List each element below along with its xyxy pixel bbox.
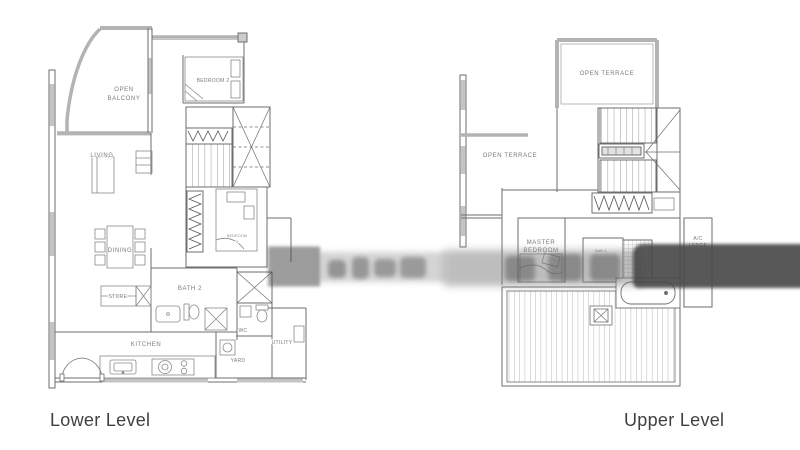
label-master-bedroom: MASTER — [527, 240, 556, 246]
label-bedroom3-2: 3 — [236, 240, 238, 244]
label-bath1: Bath 1 — [595, 249, 607, 253]
shaft-icon — [237, 272, 272, 303]
upper-room-labels: OPEN TERRACE OPEN TERRACE MASTER BEDROOM… — [483, 71, 708, 254]
wc-fixtures — [240, 305, 268, 322]
shower-icon — [205, 308, 227, 330]
label-wc: WC — [239, 328, 248, 334]
floorplan-image: OPEN BALCONY BEDROOM 2 LIVING DINING STO… — [0, 0, 800, 450]
wc-sink-icon — [240, 306, 251, 317]
label-open-terrace-top: OPEN TERRACE — [580, 71, 634, 77]
bedroom3 — [186, 187, 267, 267]
lower-level-plan: OPEN BALCONY BEDROOM 2 LIVING DINING STO… — [49, 28, 306, 388]
label-kitchen: KITCHEN — [131, 342, 162, 348]
window-strip — [102, 379, 208, 383]
upper-wardrobe-icon — [592, 193, 674, 213]
label-utility: UTILITY — [272, 340, 293, 346]
label-store: STORE — [109, 294, 128, 300]
washing-machine-icon — [220, 340, 235, 355]
upper-bath — [583, 238, 652, 282]
label-bedroom2: BEDROOM 2 — [197, 78, 230, 84]
label-bedroom3: BEDROOM — [227, 234, 247, 238]
label-living: LIVING — [90, 153, 113, 159]
caption-upper-level: Upper Level — [624, 410, 724, 431]
upper-left-wall — [460, 75, 466, 247]
floor-plan-drawing: OPEN BALCONY BEDROOM 2 LIVING DINING STO… — [0, 0, 800, 450]
stair-rail — [599, 144, 644, 158]
wardrobe-icon — [187, 191, 203, 252]
upper-mid-walls — [461, 188, 598, 285]
caption-lower-level: Lower Level — [50, 410, 150, 431]
column — [238, 33, 247, 42]
lower-left-wall — [49, 70, 55, 388]
label-open-balcony-2: BALCONY — [108, 96, 141, 102]
wc-toilet-icon — [256, 305, 268, 322]
tv-console-icon — [136, 151, 152, 173]
ac-ledge-box — [684, 218, 712, 307]
upper-right-wall — [657, 108, 680, 307]
stairs-icon — [186, 107, 270, 187]
label-ac-ledge-2: LEDGE — [689, 243, 708, 249]
bedroom2-walls — [183, 42, 244, 103]
master-bed-icon — [520, 253, 562, 282]
utility-fixture — [294, 326, 304, 342]
balcony-right-wall — [148, 28, 152, 133]
label-open-terrace-side: OPEN TERRACE — [483, 153, 537, 159]
window-strip — [237, 379, 303, 383]
dining-table-icon — [95, 226, 145, 268]
label-yard: YARD — [231, 358, 246, 364]
label-master-bedroom-2: BEDROOM — [523, 248, 558, 254]
upper-level-plan: OPEN TERRACE OPEN TERRACE MASTER BEDROOM… — [460, 40, 712, 386]
upper-stairs-icon — [598, 108, 680, 192]
sink-icon — [156, 306, 180, 322]
label-open-balcony: OPEN — [114, 87, 133, 93]
bath2-fixtures — [156, 304, 227, 330]
shower-tiles — [623, 240, 652, 280]
drain-icon — [590, 306, 612, 325]
bathtub-icon — [616, 278, 680, 308]
label-ac-ledge: A/C — [693, 236, 702, 242]
label-dining: DINING — [108, 248, 133, 254]
kitchen-counter-icon — [100, 356, 215, 378]
lower-room-labels: OPEN BALCONY BEDROOM 2 LIVING DINING STO… — [90, 78, 292, 364]
toilet-icon — [184, 304, 199, 320]
sofa-icon — [92, 157, 114, 193]
label-bath2: BATH 2 — [178, 286, 202, 292]
